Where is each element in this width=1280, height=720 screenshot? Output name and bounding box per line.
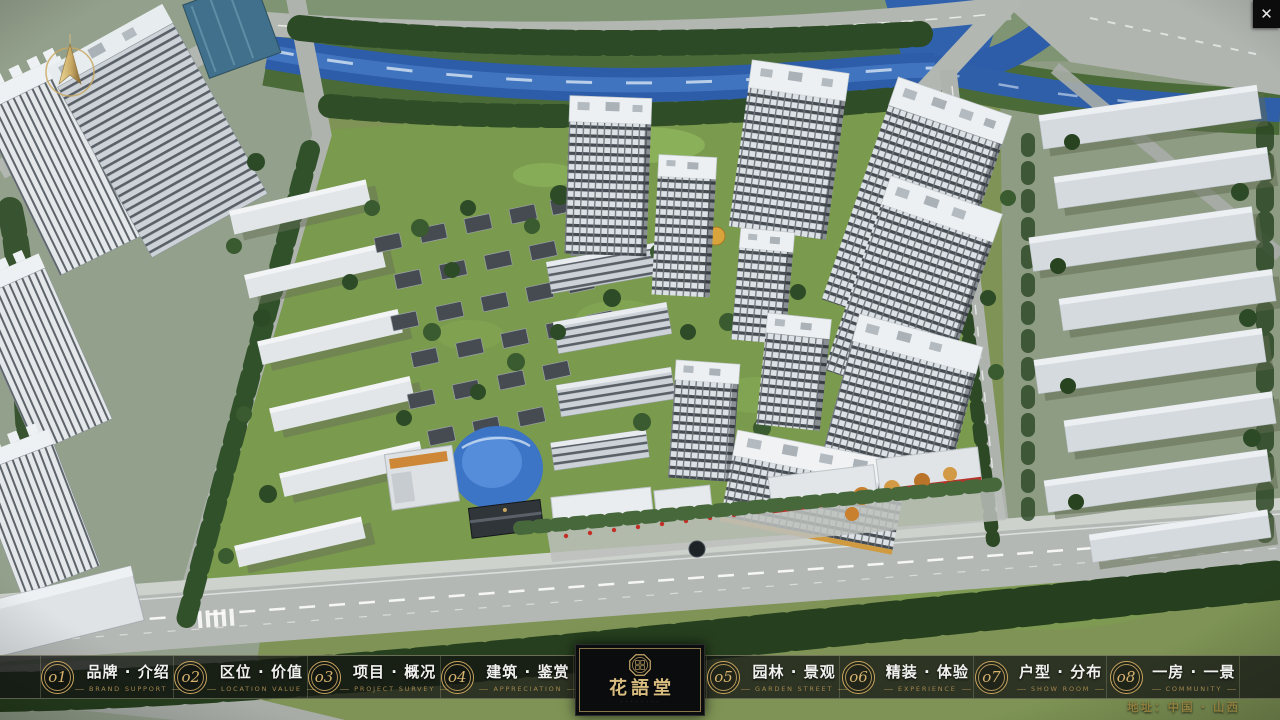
- presentation-window: ✕ o1 品牌 · 介绍BRAND SUPPORT o2 区位 · 价值LOCA…: [0, 0, 1280, 720]
- nav-item-label-cn: 品牌 · 介绍: [87, 661, 170, 682]
- nav-item-label-cn: 项目 · 概况: [353, 661, 436, 682]
- nav-item-project[interactable]: o3 项目 · 概况PROJECT SURVEY: [307, 656, 440, 698]
- nav-item-views[interactable]: o8 一房 · 一景COMMUNITY: [1106, 656, 1240, 698]
- close-icon: ✕: [1260, 7, 1273, 22]
- nav-item-location[interactable]: o2 区位 · 价值LOCATION VALUE: [173, 656, 306, 698]
- nav-item-number: o5: [714, 670, 733, 685]
- nav-item-label-cn: 户型 · 分布: [1019, 661, 1102, 682]
- nav-item-label-en: EXPERIENCE: [884, 685, 971, 693]
- logo-title: 花語堂: [605, 678, 675, 700]
- nav-item-label-en: APPRECIATION: [479, 685, 576, 693]
- nav-item-number: o2: [181, 670, 200, 685]
- nav-item-brand[interactable]: o1 品牌 · 介绍BRAND SUPPORT: [40, 656, 173, 698]
- nav-item-number: o8: [1117, 670, 1136, 685]
- nav-item-number: o3: [315, 670, 334, 685]
- logo-panel[interactable]: 花語堂 · · · · · · · ·: [575, 644, 705, 716]
- close-button[interactable]: ✕: [1253, 0, 1280, 28]
- nav-item-label-en: LOCATION VALUE: [207, 685, 316, 693]
- nav-item-label-cn: 精装 · 体验: [886, 661, 969, 682]
- nav-item-number-badge: o7: [975, 661, 1008, 694]
- nav-item-number-badge: o8: [1110, 661, 1143, 694]
- nav-item-label-cn: 建筑 · 鉴赏: [486, 661, 569, 682]
- logo-subtext: · · · · · · · ·: [621, 700, 660, 705]
- nav-item-number: o6: [849, 670, 868, 685]
- logo-slot: 花語堂 · · · · · · · ·: [573, 656, 706, 698]
- project-address: 地址：中国 · 山西: [1127, 699, 1240, 715]
- nav-item-number: o4: [448, 670, 467, 685]
- compass-icon: [42, 32, 98, 104]
- nav-item-number-badge: o6: [842, 661, 875, 694]
- nav-item-label-cn: 园林 · 景观: [753, 661, 836, 682]
- nav-item-landscape[interactable]: o5 园林 · 景观GARDEN STREET: [706, 656, 839, 698]
- nav-item-number-badge: o5: [707, 661, 740, 694]
- nav-item-number-badge: o3: [308, 661, 341, 694]
- nav-item-label-en: PROJECT SURVEY: [340, 685, 449, 693]
- nav-item-number: o7: [982, 670, 1001, 685]
- logo-frame: 花語堂 · · · · · · · ·: [579, 648, 701, 712]
- nav-item-interior[interactable]: o6 精装 · 体验EXPERIENCE: [839, 656, 972, 698]
- nav-item-number-badge: o1: [41, 661, 74, 694]
- nav-item-number-badge: o4: [441, 661, 474, 694]
- bottom-nav-bar: o1 品牌 · 介绍BRAND SUPPORT o2 区位 · 价值LOCATI…: [0, 655, 1280, 699]
- nav-item-label-cn: 区位 · 价值: [220, 661, 303, 682]
- nav-item-label-en: GARDEN STREET: [741, 685, 847, 693]
- nav-item-label-en: BRAND SUPPORT: [75, 685, 181, 693]
- nav-item-label-en: COMMUNITY: [1152, 685, 1237, 693]
- seal-emblem-icon: [628, 653, 652, 677]
- masterplan-render: [0, 0, 1280, 720]
- nav-item-label-cn: 一房 · 一景: [1152, 661, 1235, 682]
- nav-item-number: o1: [48, 670, 67, 685]
- nav-item-number-badge: o2: [174, 661, 207, 694]
- nav-item-floorplans[interactable]: o7 户型 · 分布SHOW ROOM: [973, 656, 1106, 698]
- nav-item-label-en: SHOW ROOM: [1017, 685, 1104, 693]
- vignette: [0, 0, 1280, 720]
- nav-item-architecture[interactable]: o4 建筑 · 鉴赏APPRECIATION: [440, 656, 573, 698]
